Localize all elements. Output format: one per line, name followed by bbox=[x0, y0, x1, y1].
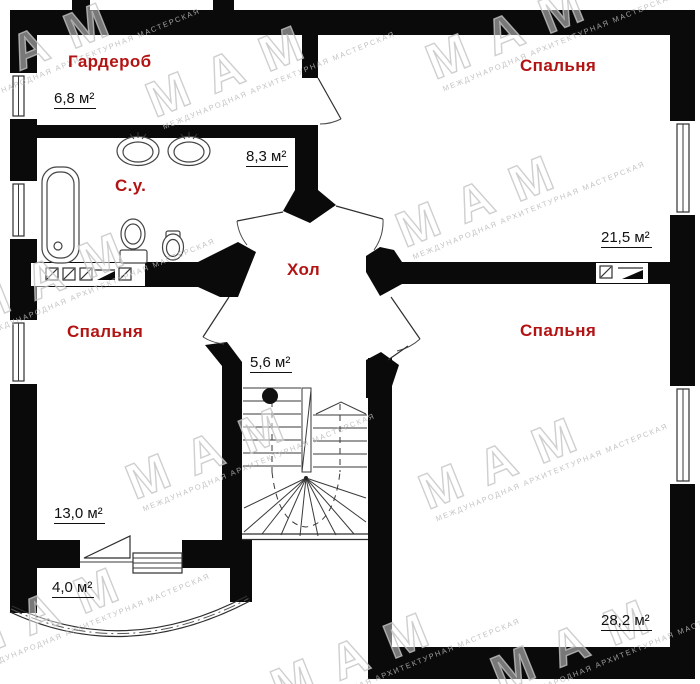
window-bathroom-left bbox=[8, 181, 39, 239]
vent-shaft-bedrooms bbox=[596, 263, 648, 283]
door-bedroom-top-right bbox=[336, 206, 383, 250]
watermark-layer bbox=[0, 0, 700, 684]
area-label-bedroom-top-right: 21,5 м² bbox=[601, 229, 652, 248]
watermark bbox=[411, 373, 669, 525]
floor-plan-drawing: МАМ МЕЖДУНАРОДНАЯ АРХИТЕКТУРНАЯ МАСТЕРСК… bbox=[0, 0, 700, 684]
window-bedroom-bottom-right bbox=[668, 386, 697, 484]
room-label-hall: Хол bbox=[287, 260, 320, 280]
door-bedroom-bottom-right bbox=[388, 297, 420, 360]
room-label-bedroom-left: Спальня bbox=[67, 322, 143, 342]
floor-plan: МАМ МЕЖДУНАРОДНАЯ АРХИТЕКТУРНАЯ МАСТЕРСК… bbox=[0, 0, 700, 684]
room-label-bathroom: С.у. bbox=[115, 176, 146, 196]
watermark bbox=[118, 363, 376, 515]
room-label-bedroom-top-right: Спальня bbox=[520, 56, 596, 76]
room-label-bedroom-bottom-right: Спальня bbox=[520, 321, 596, 341]
door-bathroom bbox=[237, 212, 283, 245]
window-bedroom-top-right bbox=[668, 121, 697, 215]
area-label-wardrobe: 6,8 м² bbox=[54, 90, 96, 109]
area-label-bedroom-bottom-right: 28,2 м² bbox=[601, 612, 652, 631]
door-wardrobe bbox=[318, 78, 341, 124]
window-bedroom-left bbox=[8, 320, 39, 384]
area-label-bathroom: 8,3 м² bbox=[246, 148, 288, 167]
room-label-wardrobe: Гардероб bbox=[68, 52, 152, 72]
area-label-stairs: 5,6 м² bbox=[250, 354, 292, 373]
area-label-balcony: 4,0 м² bbox=[52, 579, 94, 598]
door-bedroom-left bbox=[203, 297, 229, 344]
area-label-bedroom-left: 13,0 м² bbox=[54, 505, 105, 524]
